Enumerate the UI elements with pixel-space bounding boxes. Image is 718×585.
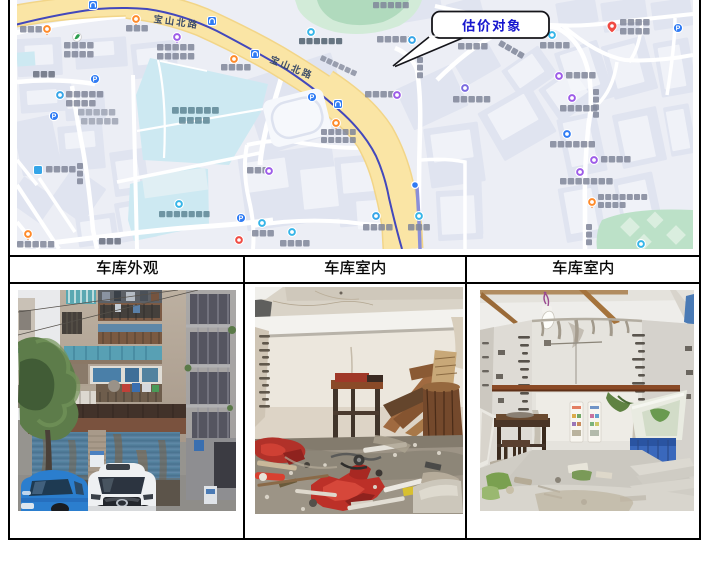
svg-text:P: P [239,216,244,223]
svg-text:P: P [310,95,315,102]
svg-text:P: P [52,114,57,121]
svg-text:P: P [93,77,98,84]
svg-text:P: P [676,26,681,33]
